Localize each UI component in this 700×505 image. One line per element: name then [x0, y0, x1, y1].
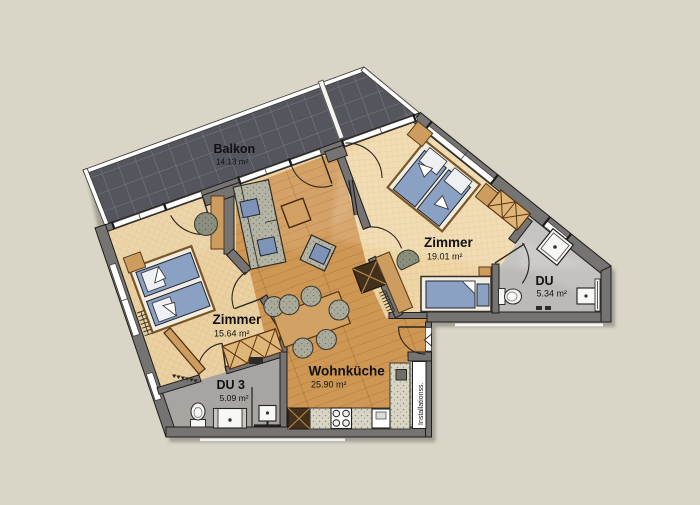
- svg-text:5.34 m²: 5.34 m²: [537, 289, 568, 299]
- svg-text:19.01 m²: 19.01 m²: [427, 252, 463, 262]
- svg-text:15.64 m²: 15.64 m²: [214, 329, 250, 339]
- svg-text:14.13 m²: 14.13 m²: [216, 158, 249, 167]
- svg-text:Balkon: Balkon: [214, 142, 256, 156]
- svg-text:Zimmer: Zimmer: [424, 235, 474, 250]
- svg-text:DU 3: DU 3: [217, 378, 246, 392]
- svg-text:25.90 m²: 25.90 m²: [311, 380, 347, 390]
- svg-text:Wohnküche: Wohnküche: [309, 364, 386, 379]
- svg-text:5.09 m²: 5.09 m²: [220, 393, 249, 403]
- svg-text:Zimmer: Zimmer: [213, 312, 263, 327]
- svg-text:Installationss.: Installationss.: [418, 383, 425, 425]
- svg-text:DU: DU: [536, 274, 554, 288]
